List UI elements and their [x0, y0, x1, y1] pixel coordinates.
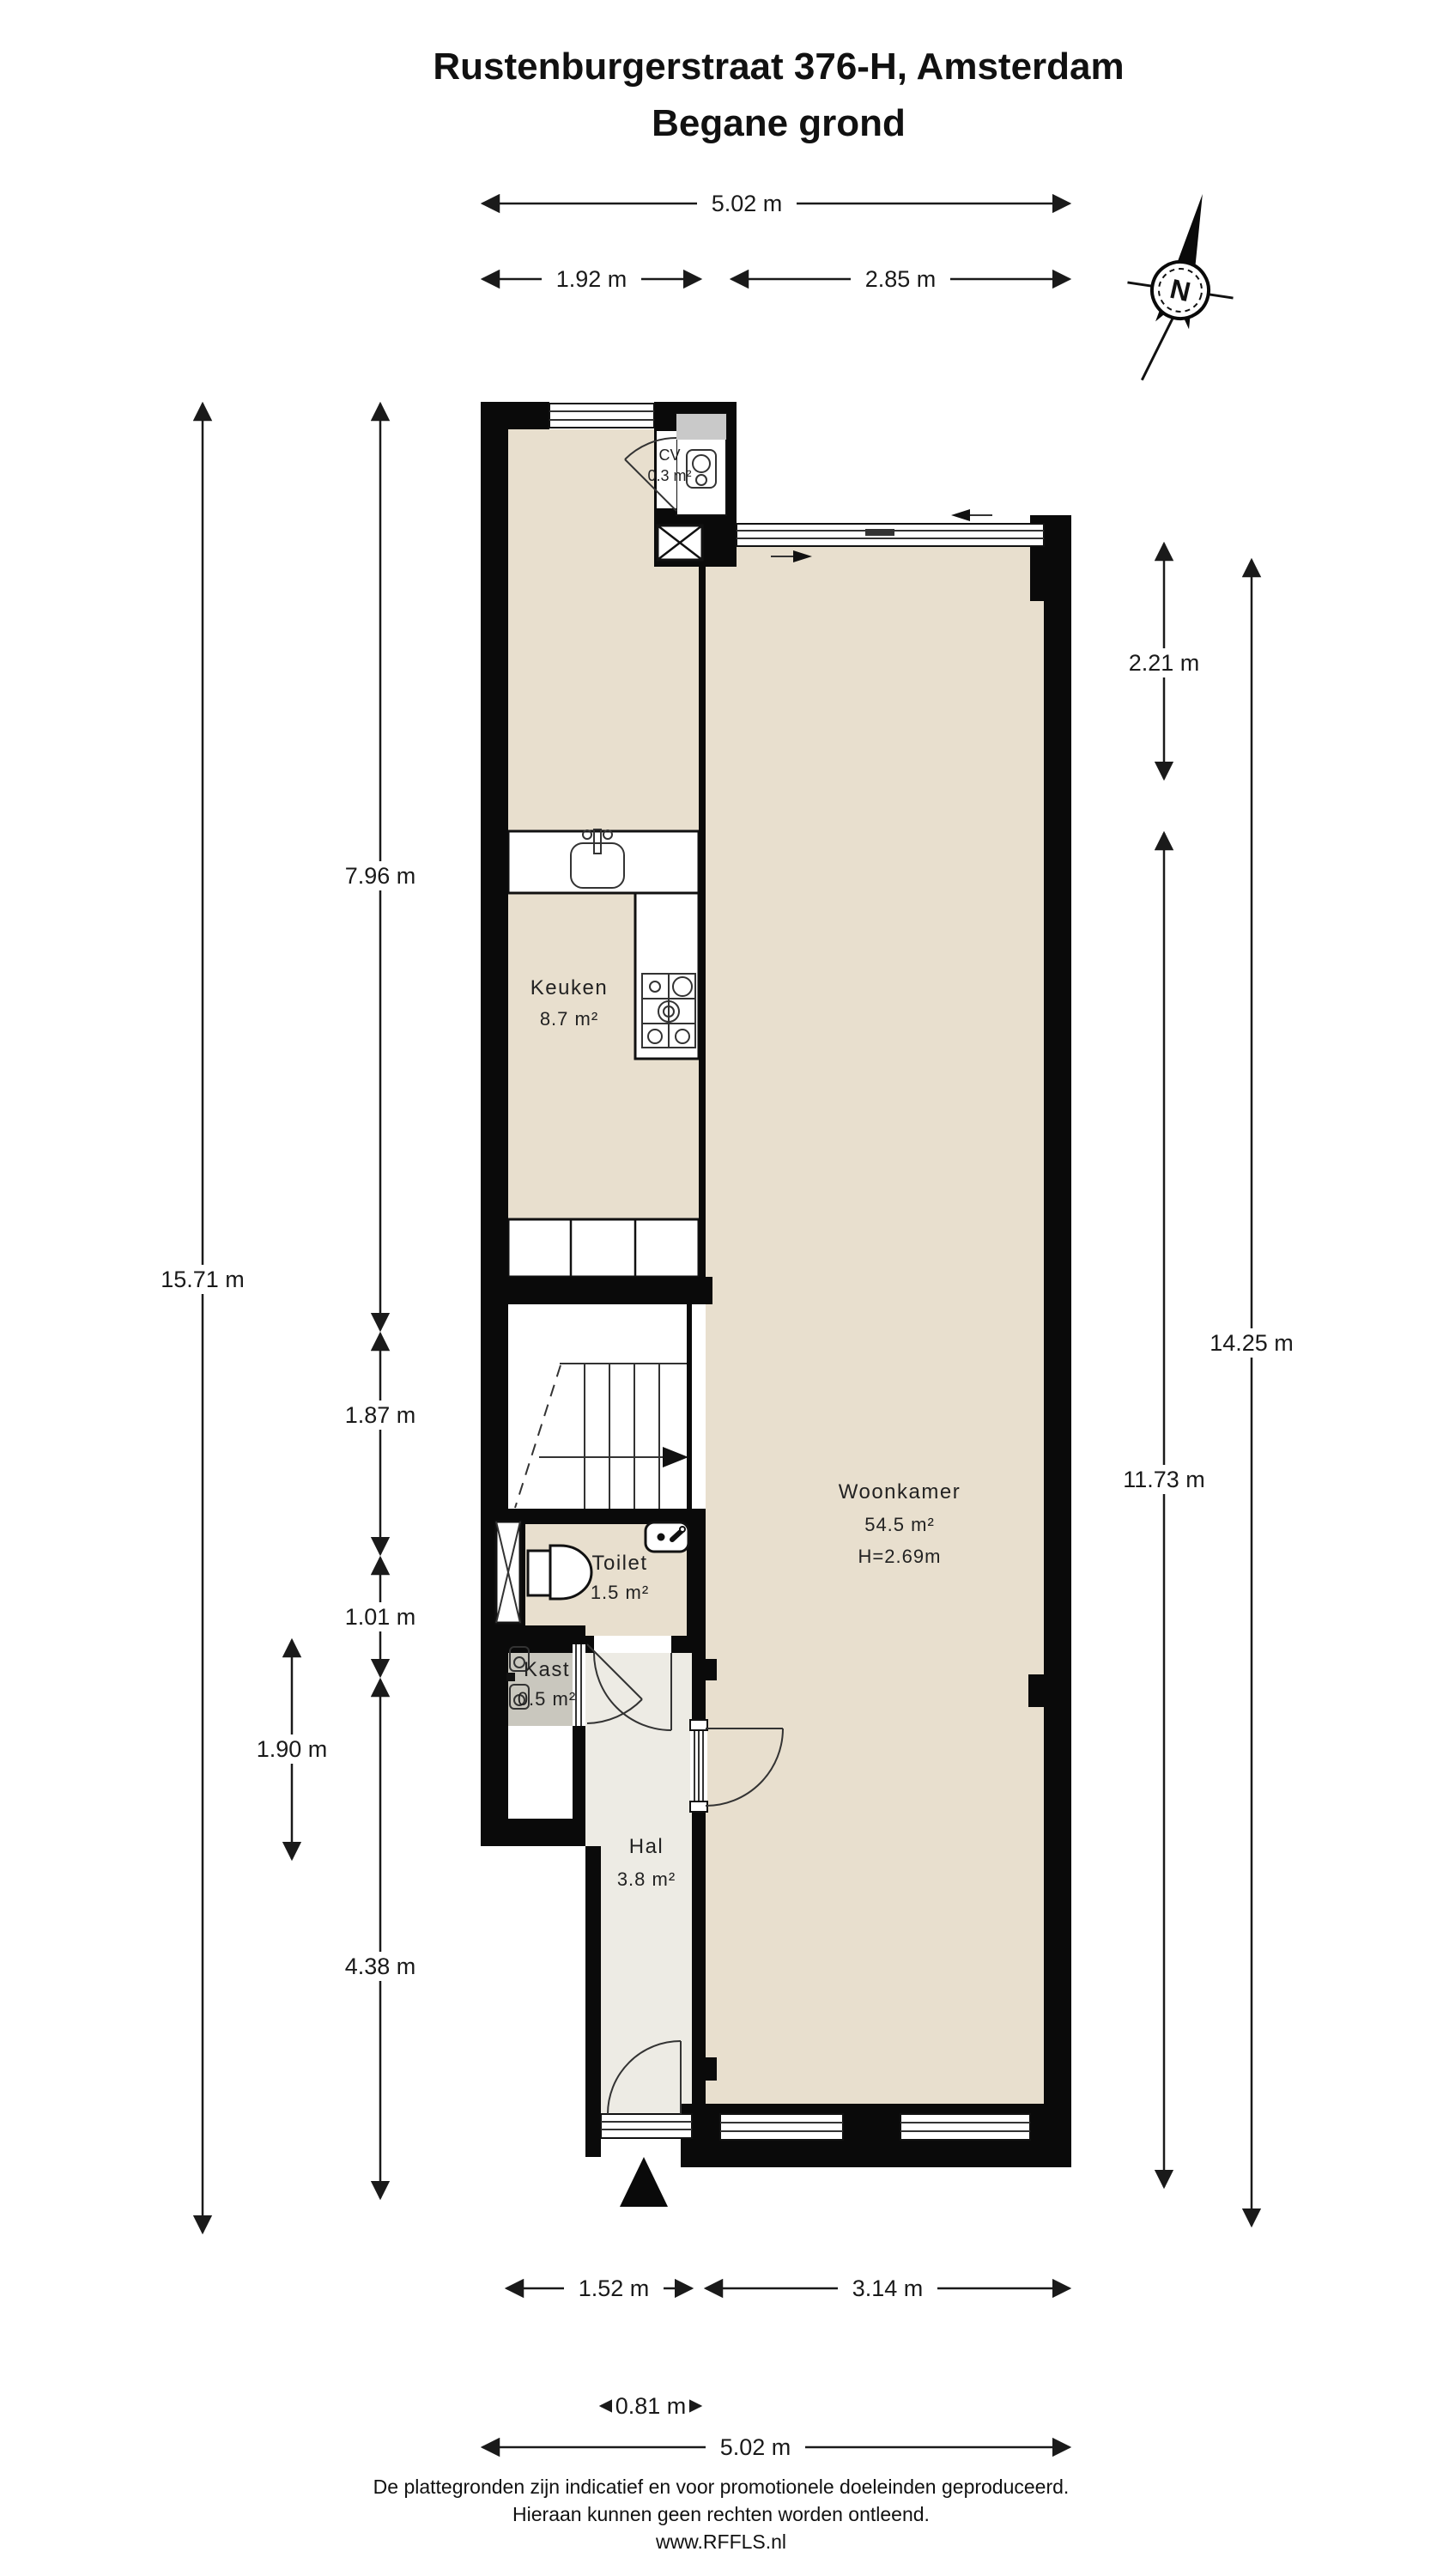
dim-top-right-label: 2.85 m	[865, 266, 937, 292]
dim-bottom-hal-label: 1.52 m	[579, 2275, 650, 2301]
wall-bottom-left	[481, 1819, 585, 1846]
dim-left-hal-label: 4.38 m	[345, 1953, 416, 1979]
room-woonkamer-floor	[706, 546, 1044, 2104]
washbasin-icon	[646, 1522, 688, 1552]
wall-stair-right	[687, 1304, 692, 1509]
wall-nub-hal-2	[706, 2057, 717, 2081]
footer-line3: www.RFFLS.nl	[655, 2530, 786, 2553]
dim-left-stairs-label: 1.87 m	[345, 1402, 416, 1428]
footer-disclaimer: De plattegronden zijn indicatief en voor…	[373, 2476, 1070, 2553]
wall-kitchen-bottom	[481, 1277, 712, 1304]
slide-arrow-left-icon	[951, 509, 992, 521]
wall-kast-top	[481, 1625, 585, 1637]
room-toilet-area: 1.5 m²	[591, 1582, 649, 1603]
dim-bottom-living-label: 3.14 m	[852, 2275, 924, 2301]
dim-left-toilet-label: 1.01 m	[345, 1604, 416, 1630]
wall-hal-left	[585, 1846, 601, 2157]
entrance-triangle-icon	[620, 2157, 668, 2207]
page-title: Rustenburgerstraat 376-H, Amsterdam Bega…	[433, 46, 1124, 144]
title-line2: Begane grond	[652, 102, 906, 144]
room-hal-area: 3.8 m²	[617, 1868, 676, 1890]
toilet-icon	[528, 1546, 591, 1599]
bottom-window-1-symbol	[720, 2114, 843, 2140]
shaft-x-symbol-top	[658, 526, 702, 560]
room-keuken-name: Keuken	[530, 976, 608, 999]
wall-nub-hal-1	[706, 1659, 717, 1680]
dim-right-total-label: 14.25 m	[1210, 1330, 1294, 1356]
room-kast-area: 0.5 m²	[518, 1688, 576, 1710]
kitchen-counter	[508, 831, 699, 893]
room-kast-name: Kast	[524, 1658, 570, 1681]
dim-left-total-label: 15.71 m	[161, 1267, 245, 1292]
room-woonkamer-height: H=2.69m	[858, 1546, 942, 1567]
dim-top-total-label: 5.02 m	[712, 191, 783, 216]
kitchen-cabinets	[508, 1219, 699, 1277]
room-cv-name: CV	[658, 447, 680, 464]
dim-bottom-door-label: 0.81 m	[615, 2393, 687, 2419]
footer-line1: De plattegronden zijn indicatief en voor…	[373, 2476, 1070, 2498]
wall-kitchen-divider	[699, 560, 706, 1277]
room-woonkamer-name: Woonkamer	[839, 1480, 961, 1504]
room-cv-area: 0.3 m²	[647, 467, 691, 484]
dim-bottom-total-label: 5.02 m	[720, 2434, 791, 2460]
wall-right	[1044, 546, 1071, 2167]
wall-nub-right	[1028, 1674, 1044, 1707]
footer-line2: Hieraan kunnen geen rechten worden ontle…	[512, 2503, 930, 2525]
top-left-window-symbol	[549, 404, 654, 428]
compass-icon: N	[1106, 182, 1254, 396]
wall-hal-right-upper	[692, 1636, 706, 1720]
room-keuken-area: 8.7 m²	[540, 1008, 598, 1030]
dim-right-top-label: 2.21 m	[1129, 650, 1200, 676]
stairs-icon	[515, 1364, 688, 1509]
shaft-x-symbol-left	[496, 1522, 520, 1623]
floor-plan-svg: Rustenburgerstraat 376-H, Amsterdam Bega…	[0, 0, 1449, 2576]
title-line1: Rustenburgerstraat 376-H, Amsterdam	[433, 46, 1124, 88]
dim-left-kitchen-label: 7.96 m	[345, 863, 416, 889]
dim-left-kast-label: 1.90 m	[257, 1736, 328, 1762]
room-hal-name: Hal	[629, 1835, 664, 1858]
room-woonkamer-area: 54.5 m²	[864, 1514, 935, 1535]
room-toilet-name: Toilet	[591, 1552, 647, 1575]
bottom-window-2-symbol	[900, 2114, 1030, 2140]
dim-right-living-label: 11.73 m	[1123, 1467, 1205, 1492]
dim-top-left-label: 1.92 m	[556, 266, 627, 292]
stair-direction-arrow-icon	[539, 1447, 688, 1467]
